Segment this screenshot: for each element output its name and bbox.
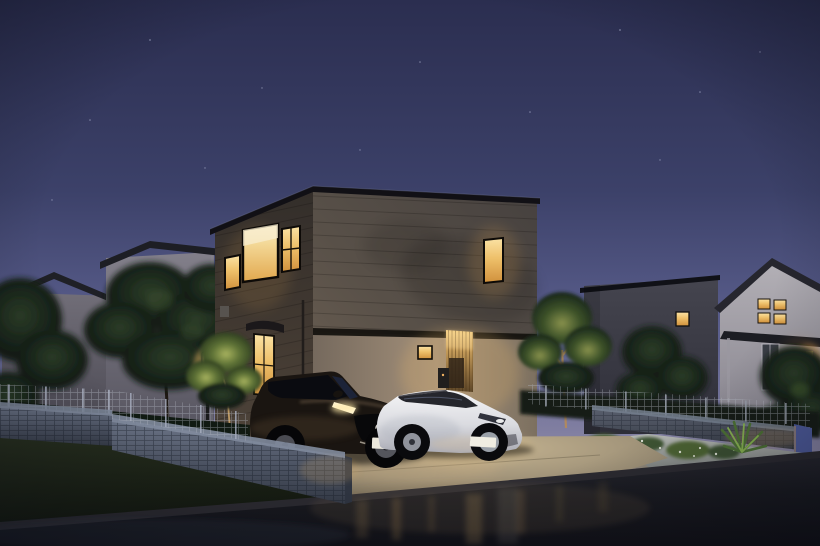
vignette [0,0,820,546]
night-render-scene [0,0,820,546]
scene-stage [0,0,820,546]
